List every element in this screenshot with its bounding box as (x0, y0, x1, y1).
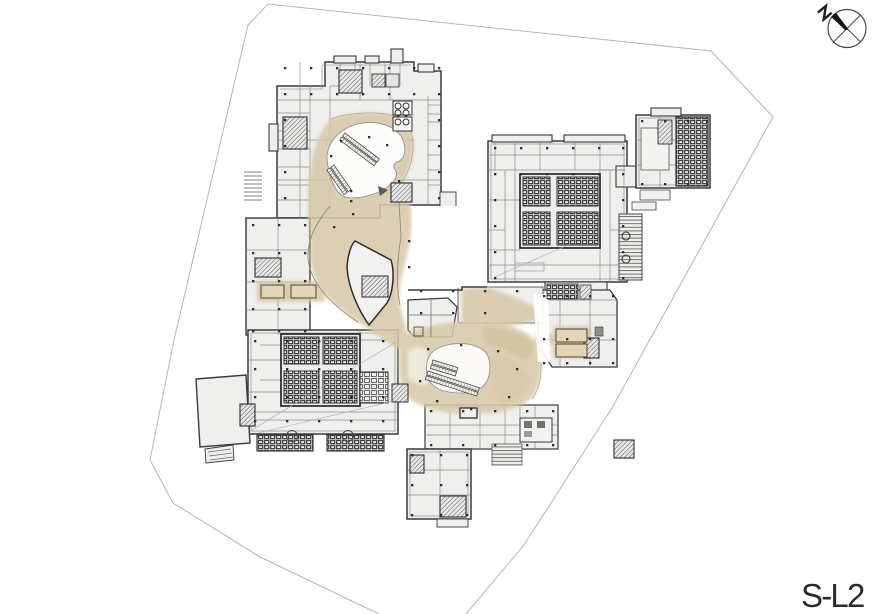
svg-text:S-L2: S-L2 (801, 577, 864, 614)
